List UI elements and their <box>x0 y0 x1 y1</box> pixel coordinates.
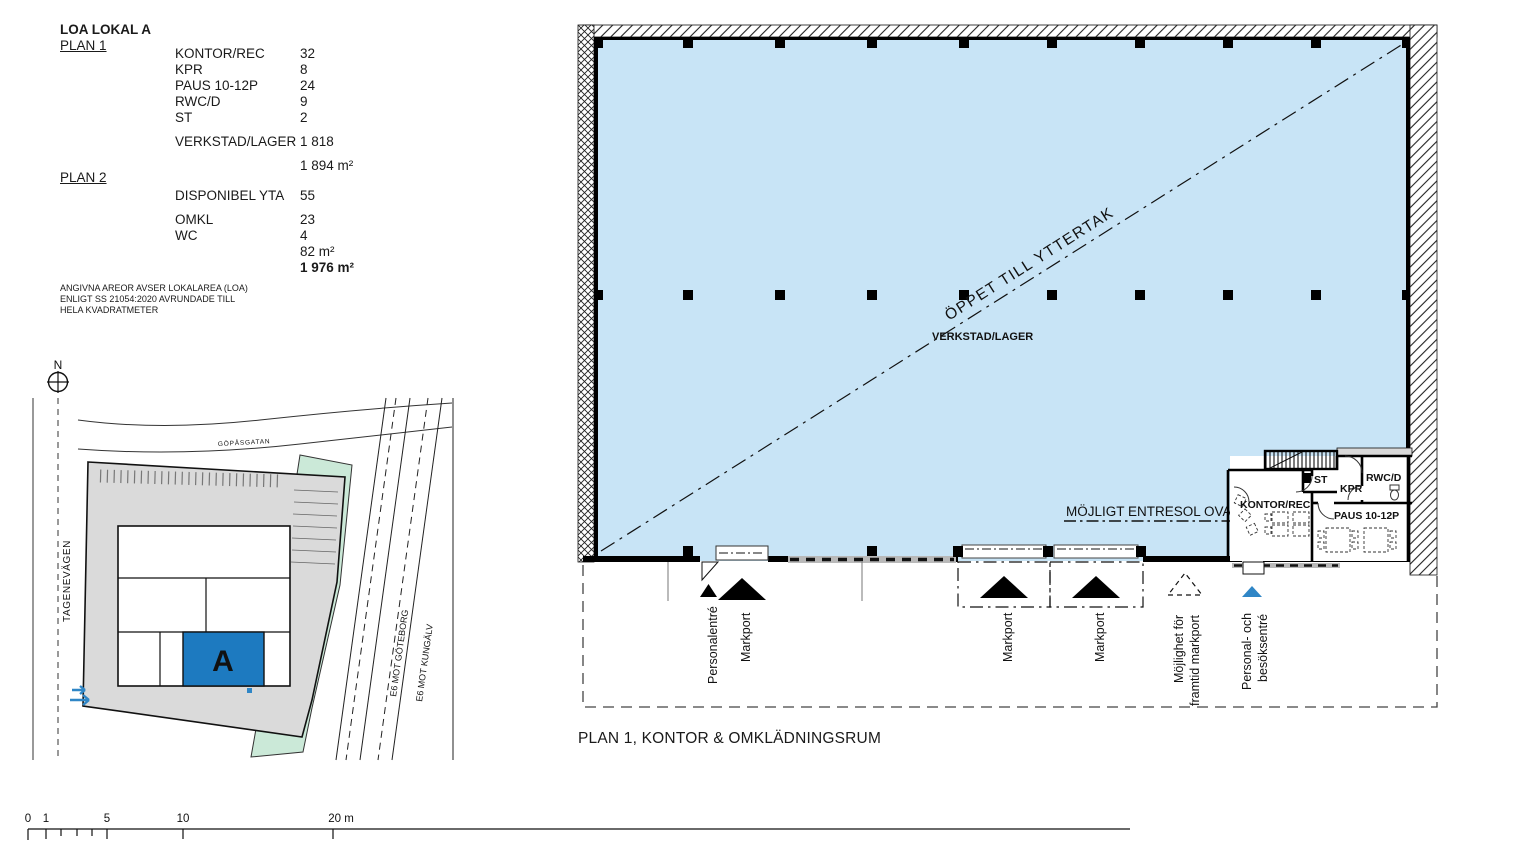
markport-arrow-icon <box>1072 576 1120 598</box>
markport-3 <box>1050 545 1146 607</box>
scale-label: 10 <box>177 813 190 825</box>
markport-label: Markport <box>739 612 753 662</box>
scale-label: 1 <box>43 813 49 825</box>
visitor-entrance-label: besöksentré <box>1256 614 1270 682</box>
floorplan-page: { "legend": { "title": "LOA LOKAL A", "p… <box>0 0 1520 841</box>
personnel-entrance-label: Personalentré <box>706 606 720 684</box>
room-label-kpr: KPR <box>1340 483 1363 495</box>
scale-label: 5 <box>104 813 110 825</box>
room-label-paus: PAUS 10-12P <box>1334 510 1399 522</box>
site-marker-dot <box>247 688 252 693</box>
drawing-canvas: N A <box>0 0 1520 841</box>
main-floor-plan: ÖPPET TILL YTTERTAK VERKSTAD/LAGER MÖJLI… <box>578 25 1437 707</box>
markport-label: Markport <box>1001 612 1015 662</box>
scale-bar: 0 1 5 10 20 m <box>25 813 1130 840</box>
street-label-gopasgatan: GÖPÅSGATAN <box>218 436 271 448</box>
scale-ticks <box>28 829 333 840</box>
markport-2 <box>953 545 1053 607</box>
markport-1 <box>716 546 768 560</box>
entrance-labels: Personalentré Markport Markport Markport… <box>706 606 1270 706</box>
scale-labels: 0 1 5 10 20 m <box>25 813 354 825</box>
markport-arrow-icon <box>718 578 766 600</box>
shaft <box>1303 473 1311 483</box>
future-port-arrow-icon <box>1168 573 1202 595</box>
highway-lines <box>336 398 453 760</box>
future-port-label: framtid markport <box>1188 614 1202 706</box>
entrance-step <box>1243 562 1264 574</box>
scale-label: 20 m <box>328 813 354 825</box>
markport-arrow-icon <box>980 576 1028 598</box>
north-label: N <box>54 358 63 372</box>
street-label-tagenevagen: TAGENEVÄGEN <box>61 540 73 622</box>
street-edge <box>78 403 452 426</box>
room-label-st: ST <box>1314 474 1328 486</box>
hall-label: VERKSTAD/LAGER <box>932 331 1033 343</box>
north-arrow: N <box>47 358 69 393</box>
room-label-kontor: KONTOR/REC <box>1240 499 1311 511</box>
office-block: KONTOR/REC ST KPR RWC/D PAUS 10-12P <box>1228 448 1412 574</box>
site-map: A GÖPÅSGATAN TAGENEVÄGEN E6 MOT GÖTEBORG… <box>33 398 453 760</box>
future-port-label: Möjlighet för <box>1172 615 1186 683</box>
stair <box>1265 451 1337 469</box>
personnel-entrance-arrow-icon <box>700 584 717 597</box>
visitor-entrance-arrow-icon <box>1242 586 1262 597</box>
personnel-door-leaf <box>702 562 718 580</box>
scale-label: 0 <box>25 813 31 825</box>
entresol-label: MÖJLIGT ENTRESOL OVAN <box>1066 504 1241 519</box>
unit-a-label: A <box>212 645 234 678</box>
markport-label: Markport <box>1093 612 1107 662</box>
highway-label-kungalv: E6 MOT KUNGÄLV <box>414 623 435 702</box>
visitor-entrance-label: Personal- och <box>1240 613 1254 690</box>
room-label-rwc: RWC/D <box>1366 472 1402 484</box>
